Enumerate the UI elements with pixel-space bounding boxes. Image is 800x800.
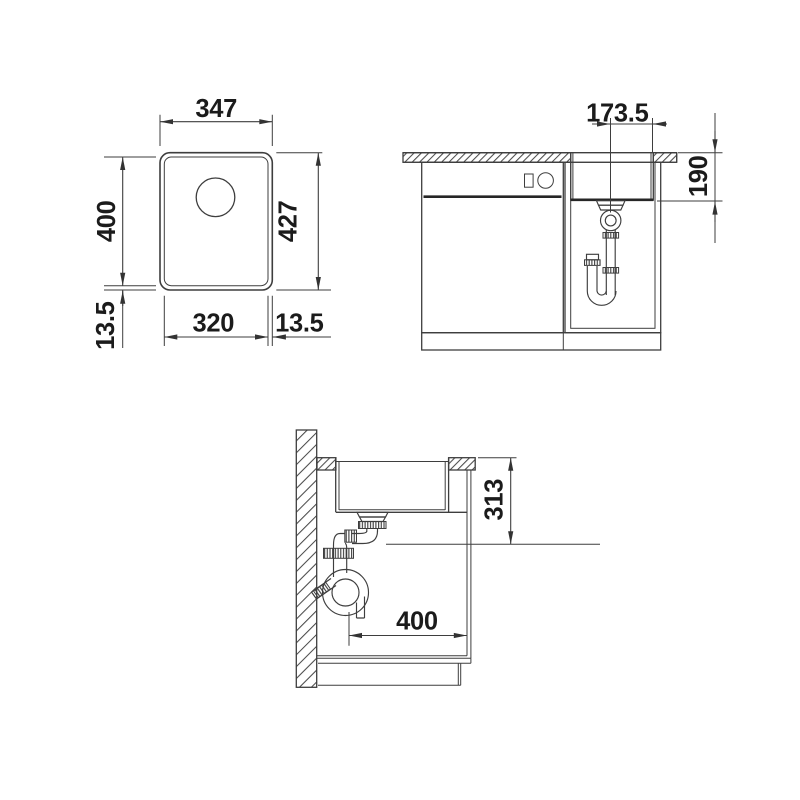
plinth xyxy=(422,333,661,350)
cabinet-sink-inner xyxy=(571,162,655,328)
technical-drawing-sheet: 347 400 13.5 427 320 13.5 xyxy=(0,0,800,800)
countertop-side-left xyxy=(317,458,336,470)
dim-label-front-center-to-edge: 173.5 xyxy=(586,100,648,128)
siphon-front xyxy=(585,201,626,306)
plan-view: 347 400 13.5 427 320 13.5 xyxy=(92,95,331,350)
dim-label-plan-offset-left: 13.5 xyxy=(92,301,120,350)
sink-bowl-side xyxy=(336,458,467,513)
countertop-right xyxy=(653,153,676,163)
cabinet-sink xyxy=(565,162,661,332)
dim-label-plan-inner-width: 320 xyxy=(192,310,234,338)
control-rect-symbol xyxy=(525,174,534,187)
siphon-side xyxy=(312,512,389,618)
dim-label-plan-outer-length: 427 xyxy=(275,200,303,242)
front-view: 173.5 190 xyxy=(403,100,723,350)
countertop-side-right xyxy=(449,458,476,470)
front-dimensions: 173.5 190 xyxy=(586,100,722,243)
cabinet-side xyxy=(317,470,471,685)
dim-label-plan-outer-width: 347 xyxy=(195,95,237,123)
side-view: 313 400 xyxy=(296,430,600,687)
countertop-left xyxy=(403,153,571,163)
control-knob-symbol xyxy=(538,173,554,189)
side-dimensions: 313 400 xyxy=(349,458,600,646)
wall-section xyxy=(296,430,316,687)
dim-label-front-bowl-depth: 190 xyxy=(685,155,713,197)
sink-outline-outer xyxy=(160,153,272,290)
sink-dimension-drawing: 347 400 13.5 427 320 13.5 xyxy=(0,0,800,800)
dim-label-plan-offset-right: 13.5 xyxy=(275,310,324,338)
dim-label-plan-inner-length: 400 xyxy=(93,200,121,242)
dim-label-side-installation-depth: 313 xyxy=(481,479,509,521)
dim-label-side-trap-offset: 400 xyxy=(396,608,438,636)
